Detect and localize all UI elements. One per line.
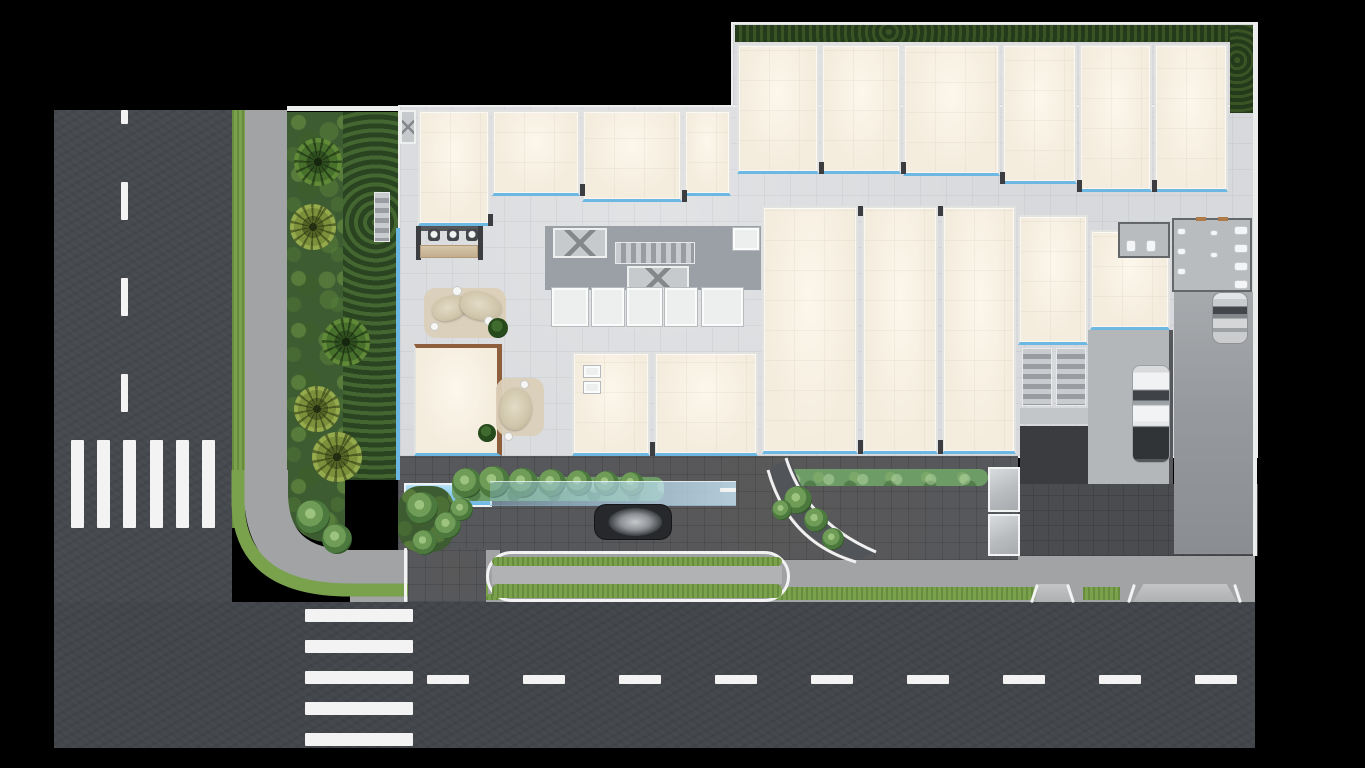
entry-tree-3 xyxy=(412,530,437,555)
layer-landscape-vehicles xyxy=(0,0,1365,768)
car-pickup xyxy=(1133,366,1169,462)
palm-3 xyxy=(322,318,370,366)
car-sedan xyxy=(594,504,672,540)
palm-1 xyxy=(294,138,342,186)
ramp-1 xyxy=(1035,584,1071,602)
entry-curb xyxy=(404,548,407,602)
entry-tree-1 xyxy=(406,492,438,524)
palm-4 xyxy=(294,386,340,432)
island-walk xyxy=(492,566,782,584)
site-plan-canvas: Ground-floor architectural site plan — t… xyxy=(0,0,1365,768)
island-grass-top xyxy=(492,557,782,566)
entry-tree-4 xyxy=(450,498,473,521)
car-compact xyxy=(1213,293,1247,343)
palm-5 xyxy=(312,432,362,482)
entry-drive xyxy=(408,548,486,602)
bed-tree-2 xyxy=(322,524,352,554)
exit-tree-2 xyxy=(804,508,828,532)
ramp-2 xyxy=(1133,584,1237,602)
palm-2 xyxy=(290,204,336,250)
exit-tree-4 xyxy=(772,500,792,520)
glass-canopy-2 xyxy=(988,514,1020,556)
glass-canopy-1 xyxy=(988,467,1020,512)
island-grass-bottom xyxy=(492,584,782,598)
exit-tree-3 xyxy=(822,528,844,550)
